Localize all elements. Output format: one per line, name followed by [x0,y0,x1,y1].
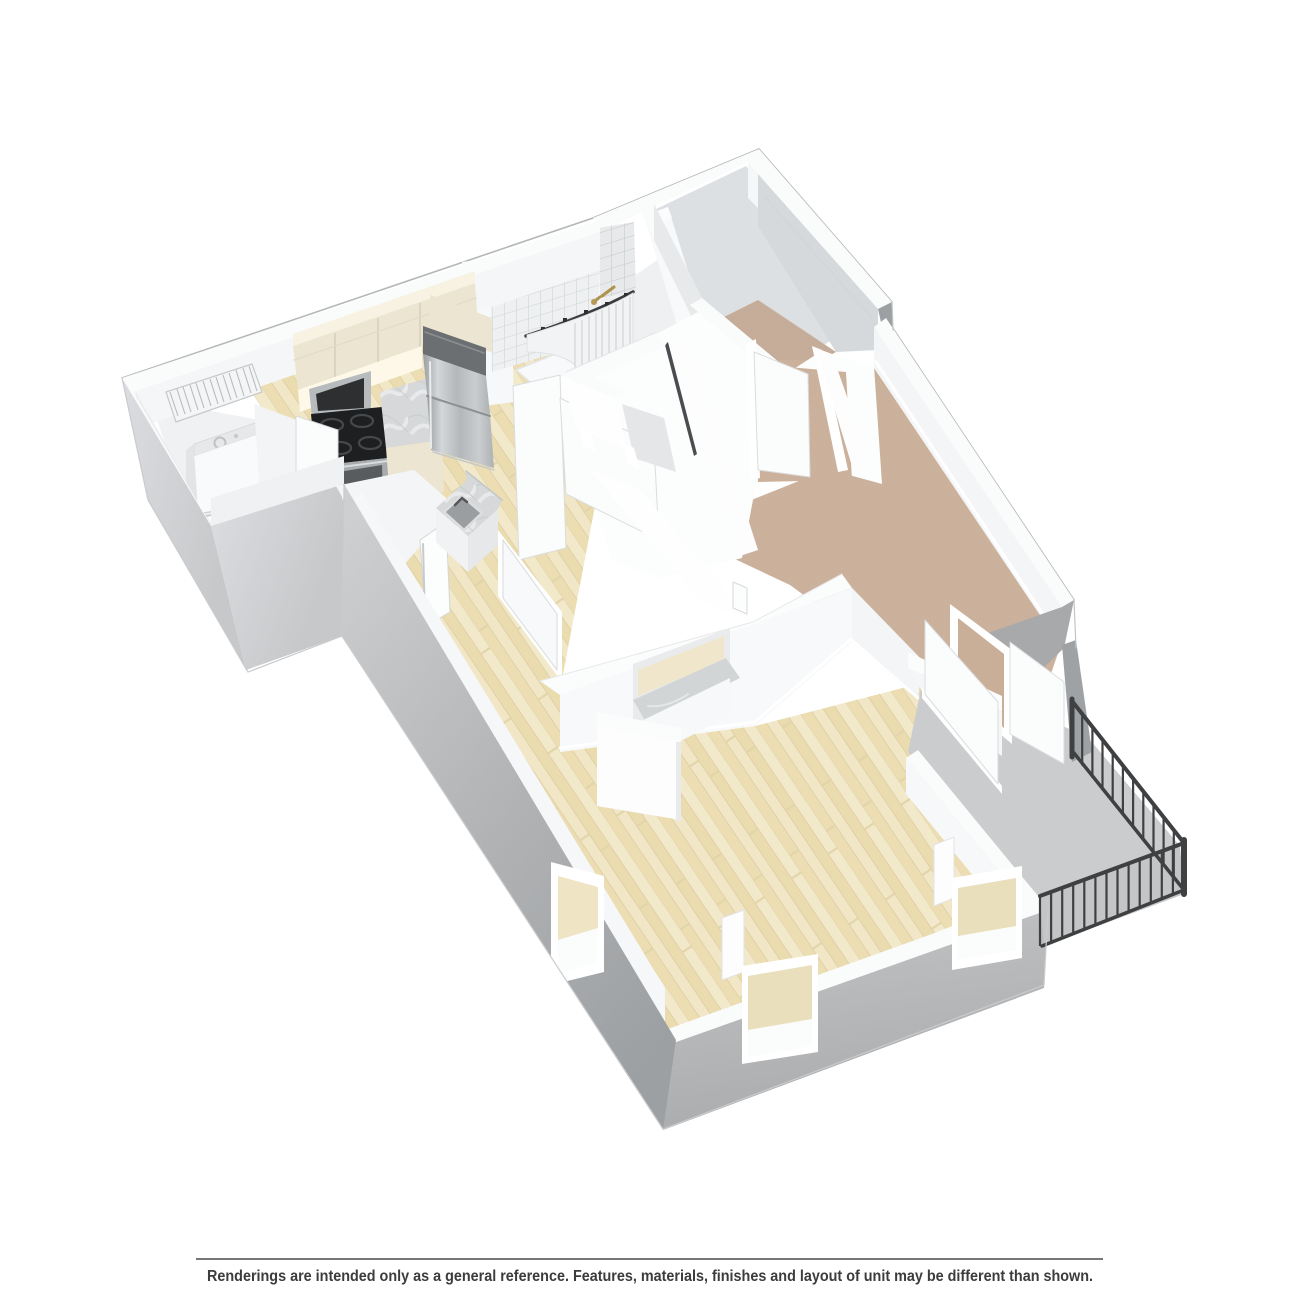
svg-text:Renderings are intended only a: Renderings are intended only as a genera… [207,1268,1093,1285]
